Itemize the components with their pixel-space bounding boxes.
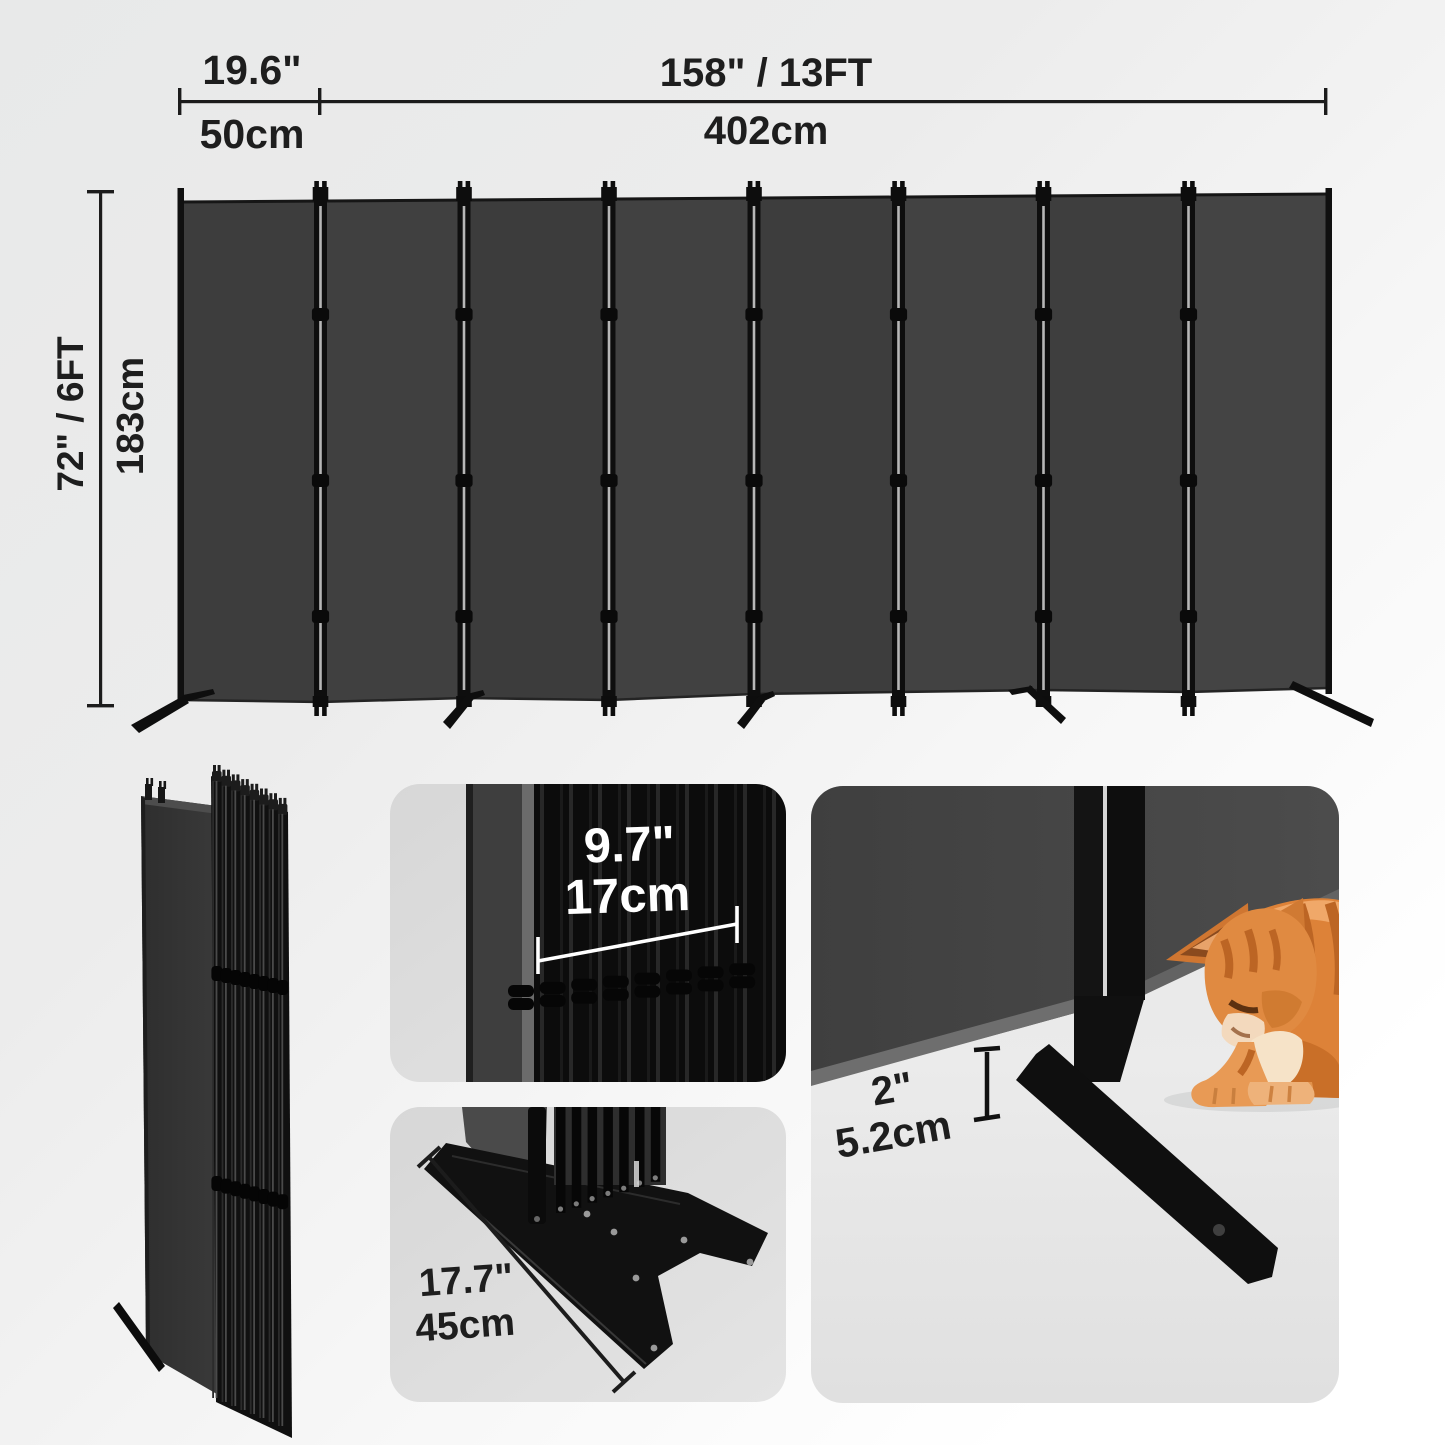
- svg-text:17.7": 17.7": [418, 1256, 515, 1305]
- svg-text:50cm: 50cm: [200, 111, 305, 157]
- svg-text:45cm: 45cm: [414, 1301, 517, 1351]
- svg-text:402cm: 402cm: [704, 109, 829, 153]
- svg-text:183cm: 183cm: [110, 357, 152, 475]
- svg-text:17cm: 17cm: [564, 867, 691, 925]
- svg-text:9.7": 9.7": [583, 816, 676, 873]
- svg-text:72" / 6FT: 72" / 6FT: [50, 336, 91, 492]
- svg-text:19.6": 19.6": [202, 47, 301, 93]
- svg-text:158" / 13FT: 158" / 13FT: [660, 51, 872, 95]
- svg-text:2": 2": [868, 1064, 916, 1114]
